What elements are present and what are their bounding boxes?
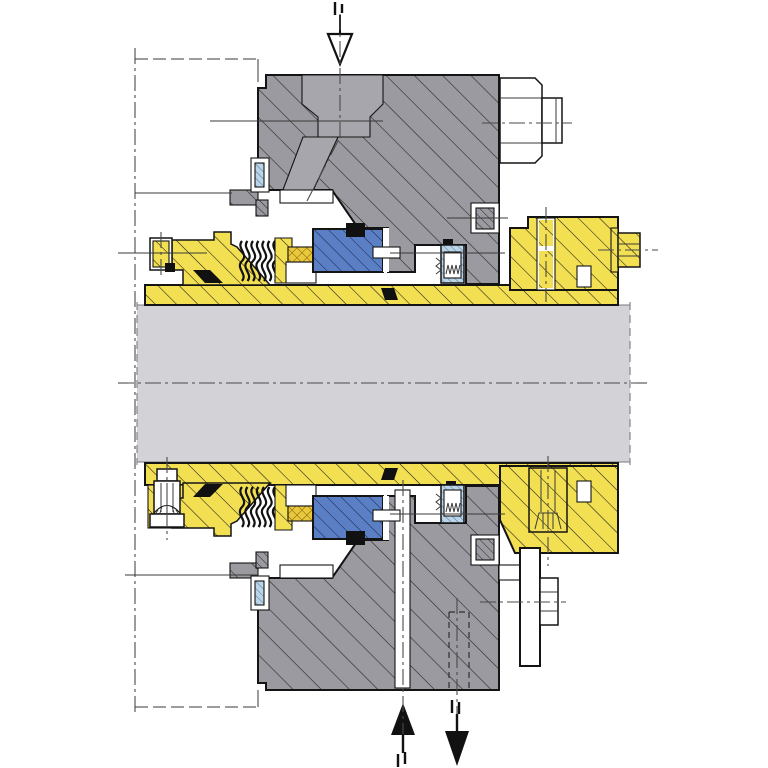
clamp-oring-top	[165, 263, 175, 272]
drawing-canvas	[0, 0, 768, 768]
solid-arrow-down-icon	[445, 731, 469, 766]
housing-nut-top	[500, 78, 542, 163]
seal-chamber-top	[280, 190, 333, 203]
gland-top	[510, 217, 640, 290]
housing-bottom-pin-block	[256, 552, 268, 568]
elastomer-top	[288, 247, 314, 262]
gland-bottom-key-slot	[577, 481, 591, 502]
drive-pin-bottom	[373, 510, 400, 521]
outlet-double-bar-icon	[452, 700, 459, 714]
flange-plate-bottom	[520, 548, 540, 666]
housing-top-pin-block	[256, 200, 268, 216]
gland-bottom	[500, 466, 618, 553]
gland-top-body	[510, 217, 618, 290]
stud-end-top	[542, 98, 562, 143]
face-retainer-top	[286, 262, 316, 283]
elastomer-bottom	[288, 506, 314, 521]
drive-collar-bottom	[172, 483, 270, 536]
face-oring-top	[346, 223, 365, 237]
housing-top-gasket	[255, 163, 264, 187]
seal-chamber-bottom	[280, 565, 333, 578]
flange-tenon-bottom	[499, 565, 520, 580]
seal-cross-section-drawing	[0, 0, 768, 768]
face-oring-bottom	[346, 531, 365, 545]
face-retainer-bottom	[286, 485, 316, 506]
flush-inlet-symbol	[391, 703, 415, 767]
inlet-double-bar-icon	[398, 752, 405, 767]
housing-bottom-gasket	[255, 581, 264, 605]
gland-pin-bottom	[476, 539, 494, 560]
gland-top-key-slot	[577, 266, 591, 287]
top-port-double-bar-icon	[335, 2, 342, 15]
